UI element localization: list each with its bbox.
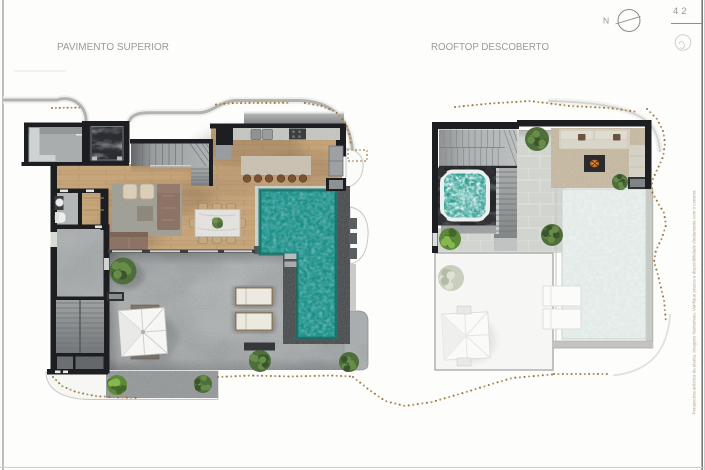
svg-text:PAVIMENTO SUPERIOR: PAVIMENTO SUPERIOR [57, 42, 169, 53]
svg-text:N: N [603, 16, 609, 26]
svg-text:42: 42 [673, 6, 690, 17]
svg-text:Perspectiva artística da plant: Perspectiva artística da planta. Imagens… [692, 190, 697, 415]
svg-text:ROOFTOP DESCOBERTO: ROOFTOP DESCOBERTO [431, 42, 549, 53]
